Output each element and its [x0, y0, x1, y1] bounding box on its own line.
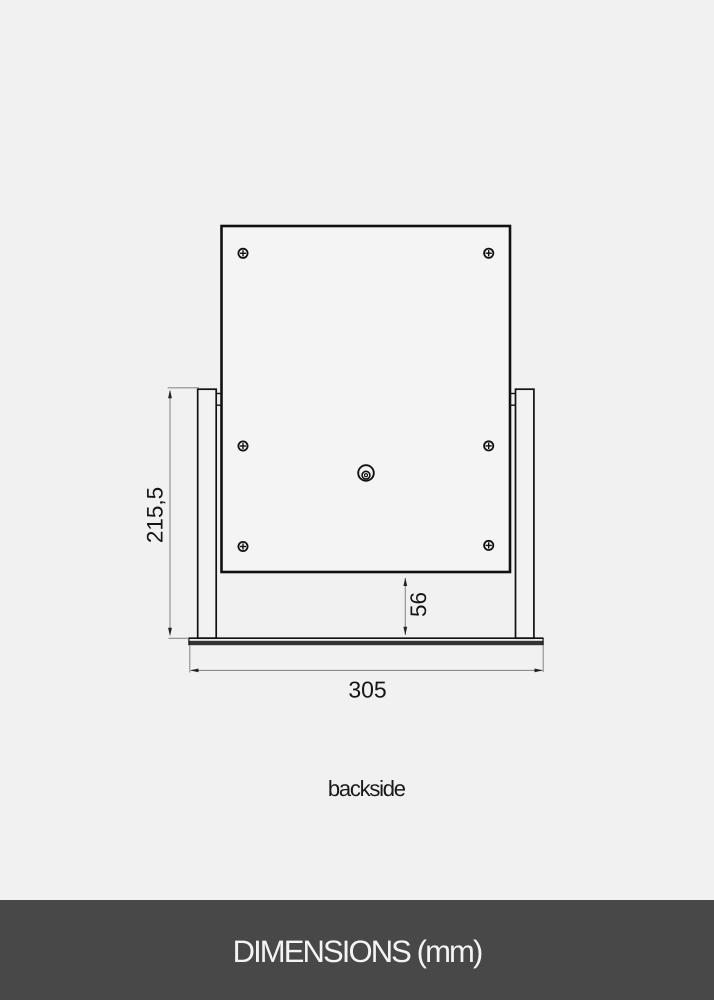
svg-text:DIMENSIONS (mm): DIMENSIONS (mm) [233, 934, 482, 969]
svg-text:backside: backside [328, 776, 406, 801]
svg-text:56: 56 [406, 592, 431, 617]
svg-text:215,5: 215,5 [142, 487, 167, 543]
svg-text:305: 305 [348, 676, 386, 702]
